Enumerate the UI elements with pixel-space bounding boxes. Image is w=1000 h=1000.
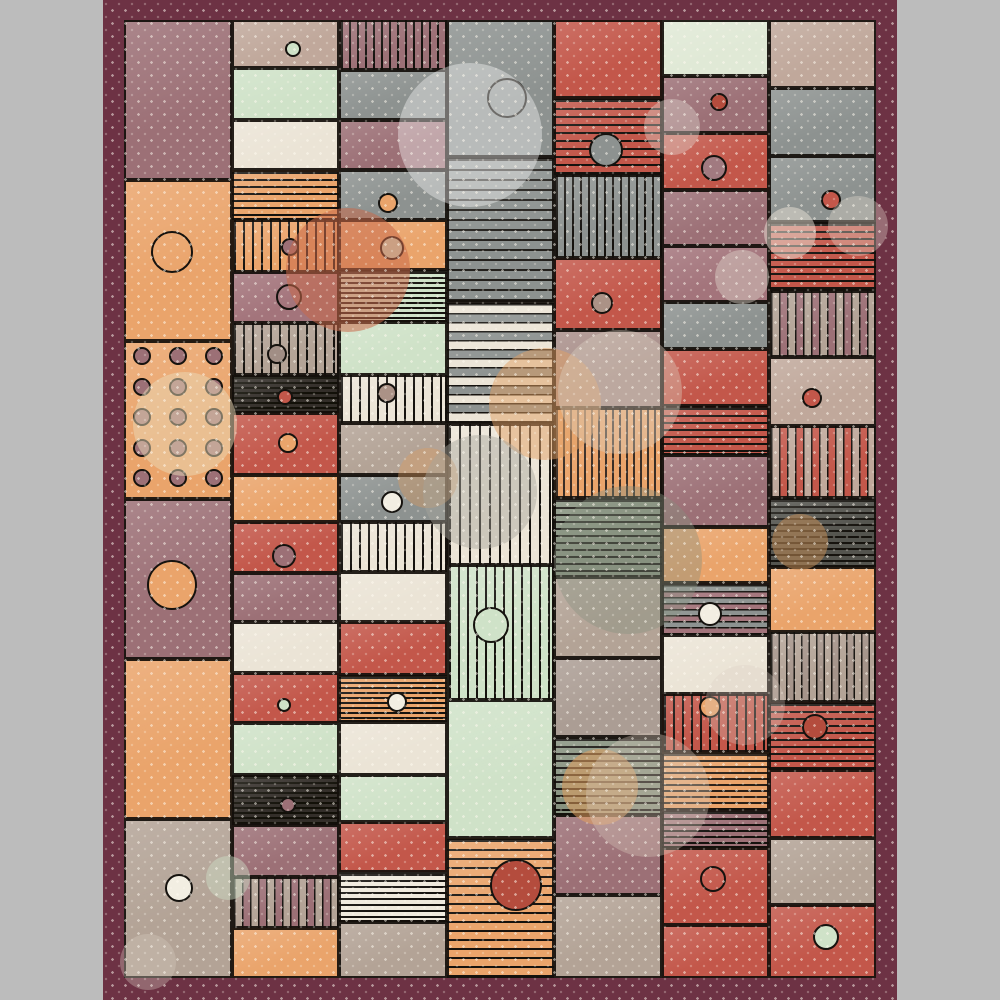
patch xyxy=(769,567,876,632)
patch xyxy=(769,632,876,702)
patch xyxy=(339,822,447,872)
patch xyxy=(662,925,769,978)
patch xyxy=(339,922,447,978)
circle-motif xyxy=(165,874,193,902)
texture-blob xyxy=(828,196,888,256)
circle-motif xyxy=(205,469,223,487)
patch xyxy=(662,20,769,76)
patch xyxy=(769,88,876,156)
texture-blob xyxy=(764,207,816,259)
circle-motif xyxy=(698,602,722,626)
circle-motif xyxy=(700,866,726,892)
patch xyxy=(554,658,662,737)
texture-blob xyxy=(772,514,828,570)
circle-motif xyxy=(133,469,151,487)
circle-motif xyxy=(387,692,407,712)
texture-blob xyxy=(398,63,542,207)
circle-motif xyxy=(473,607,509,643)
texture-blob xyxy=(554,486,702,634)
texture-blob xyxy=(286,208,410,332)
texture-blob xyxy=(705,665,785,745)
patch xyxy=(662,190,769,246)
patch xyxy=(232,68,339,120)
patch xyxy=(232,622,339,673)
patch xyxy=(769,20,876,88)
patch xyxy=(124,20,232,180)
patch xyxy=(339,572,447,622)
patch xyxy=(769,838,876,905)
circle-motif xyxy=(490,859,542,911)
patch xyxy=(769,426,876,498)
circle-motif xyxy=(267,344,287,364)
texture-blob xyxy=(133,372,237,476)
circle-motif xyxy=(151,231,193,273)
patch xyxy=(769,357,876,426)
circle-motif xyxy=(589,133,623,167)
patch xyxy=(339,622,447,675)
circle-motif xyxy=(813,924,839,950)
texture-blob xyxy=(715,250,769,304)
circle-motif xyxy=(277,389,293,405)
patch xyxy=(232,120,339,170)
circle-motif xyxy=(277,698,291,712)
circle-motif xyxy=(205,347,223,365)
texture-blob xyxy=(586,733,710,857)
patch xyxy=(232,475,339,522)
quilt-rug xyxy=(103,0,897,1000)
texture-blob xyxy=(120,934,176,990)
circle-motif xyxy=(285,41,301,57)
texture-blob xyxy=(206,856,250,900)
patch xyxy=(339,775,447,822)
texture-blob xyxy=(423,435,537,549)
patch xyxy=(662,302,769,349)
circle-motif xyxy=(272,544,296,568)
patch xyxy=(339,522,447,572)
patch xyxy=(339,20,447,70)
circle-motif xyxy=(280,797,296,813)
patch xyxy=(769,291,876,357)
circle-motif xyxy=(591,292,613,314)
circle-motif xyxy=(802,714,828,740)
abstract-quilt-artwork xyxy=(0,0,1000,1000)
circle-motif xyxy=(701,155,727,181)
patch xyxy=(447,700,554,838)
patch xyxy=(339,872,447,922)
patch xyxy=(232,573,339,622)
patch xyxy=(232,723,339,775)
texture-blob xyxy=(644,99,700,155)
circle-motif xyxy=(381,491,403,513)
circle-motif xyxy=(802,388,822,408)
circle-motif xyxy=(378,193,398,213)
patch xyxy=(554,895,662,978)
patch xyxy=(554,20,662,98)
circle-motif xyxy=(169,347,187,365)
patch xyxy=(554,175,662,258)
patch xyxy=(447,838,554,978)
circle-motif xyxy=(710,93,728,111)
circle-motif xyxy=(377,383,397,403)
patch xyxy=(232,928,339,978)
patch xyxy=(339,722,447,775)
circle-motif xyxy=(278,433,298,453)
texture-blob xyxy=(558,330,682,454)
patch xyxy=(769,770,876,838)
circle-motif xyxy=(133,347,151,365)
circle-motif xyxy=(147,560,197,610)
patch xyxy=(124,659,232,819)
